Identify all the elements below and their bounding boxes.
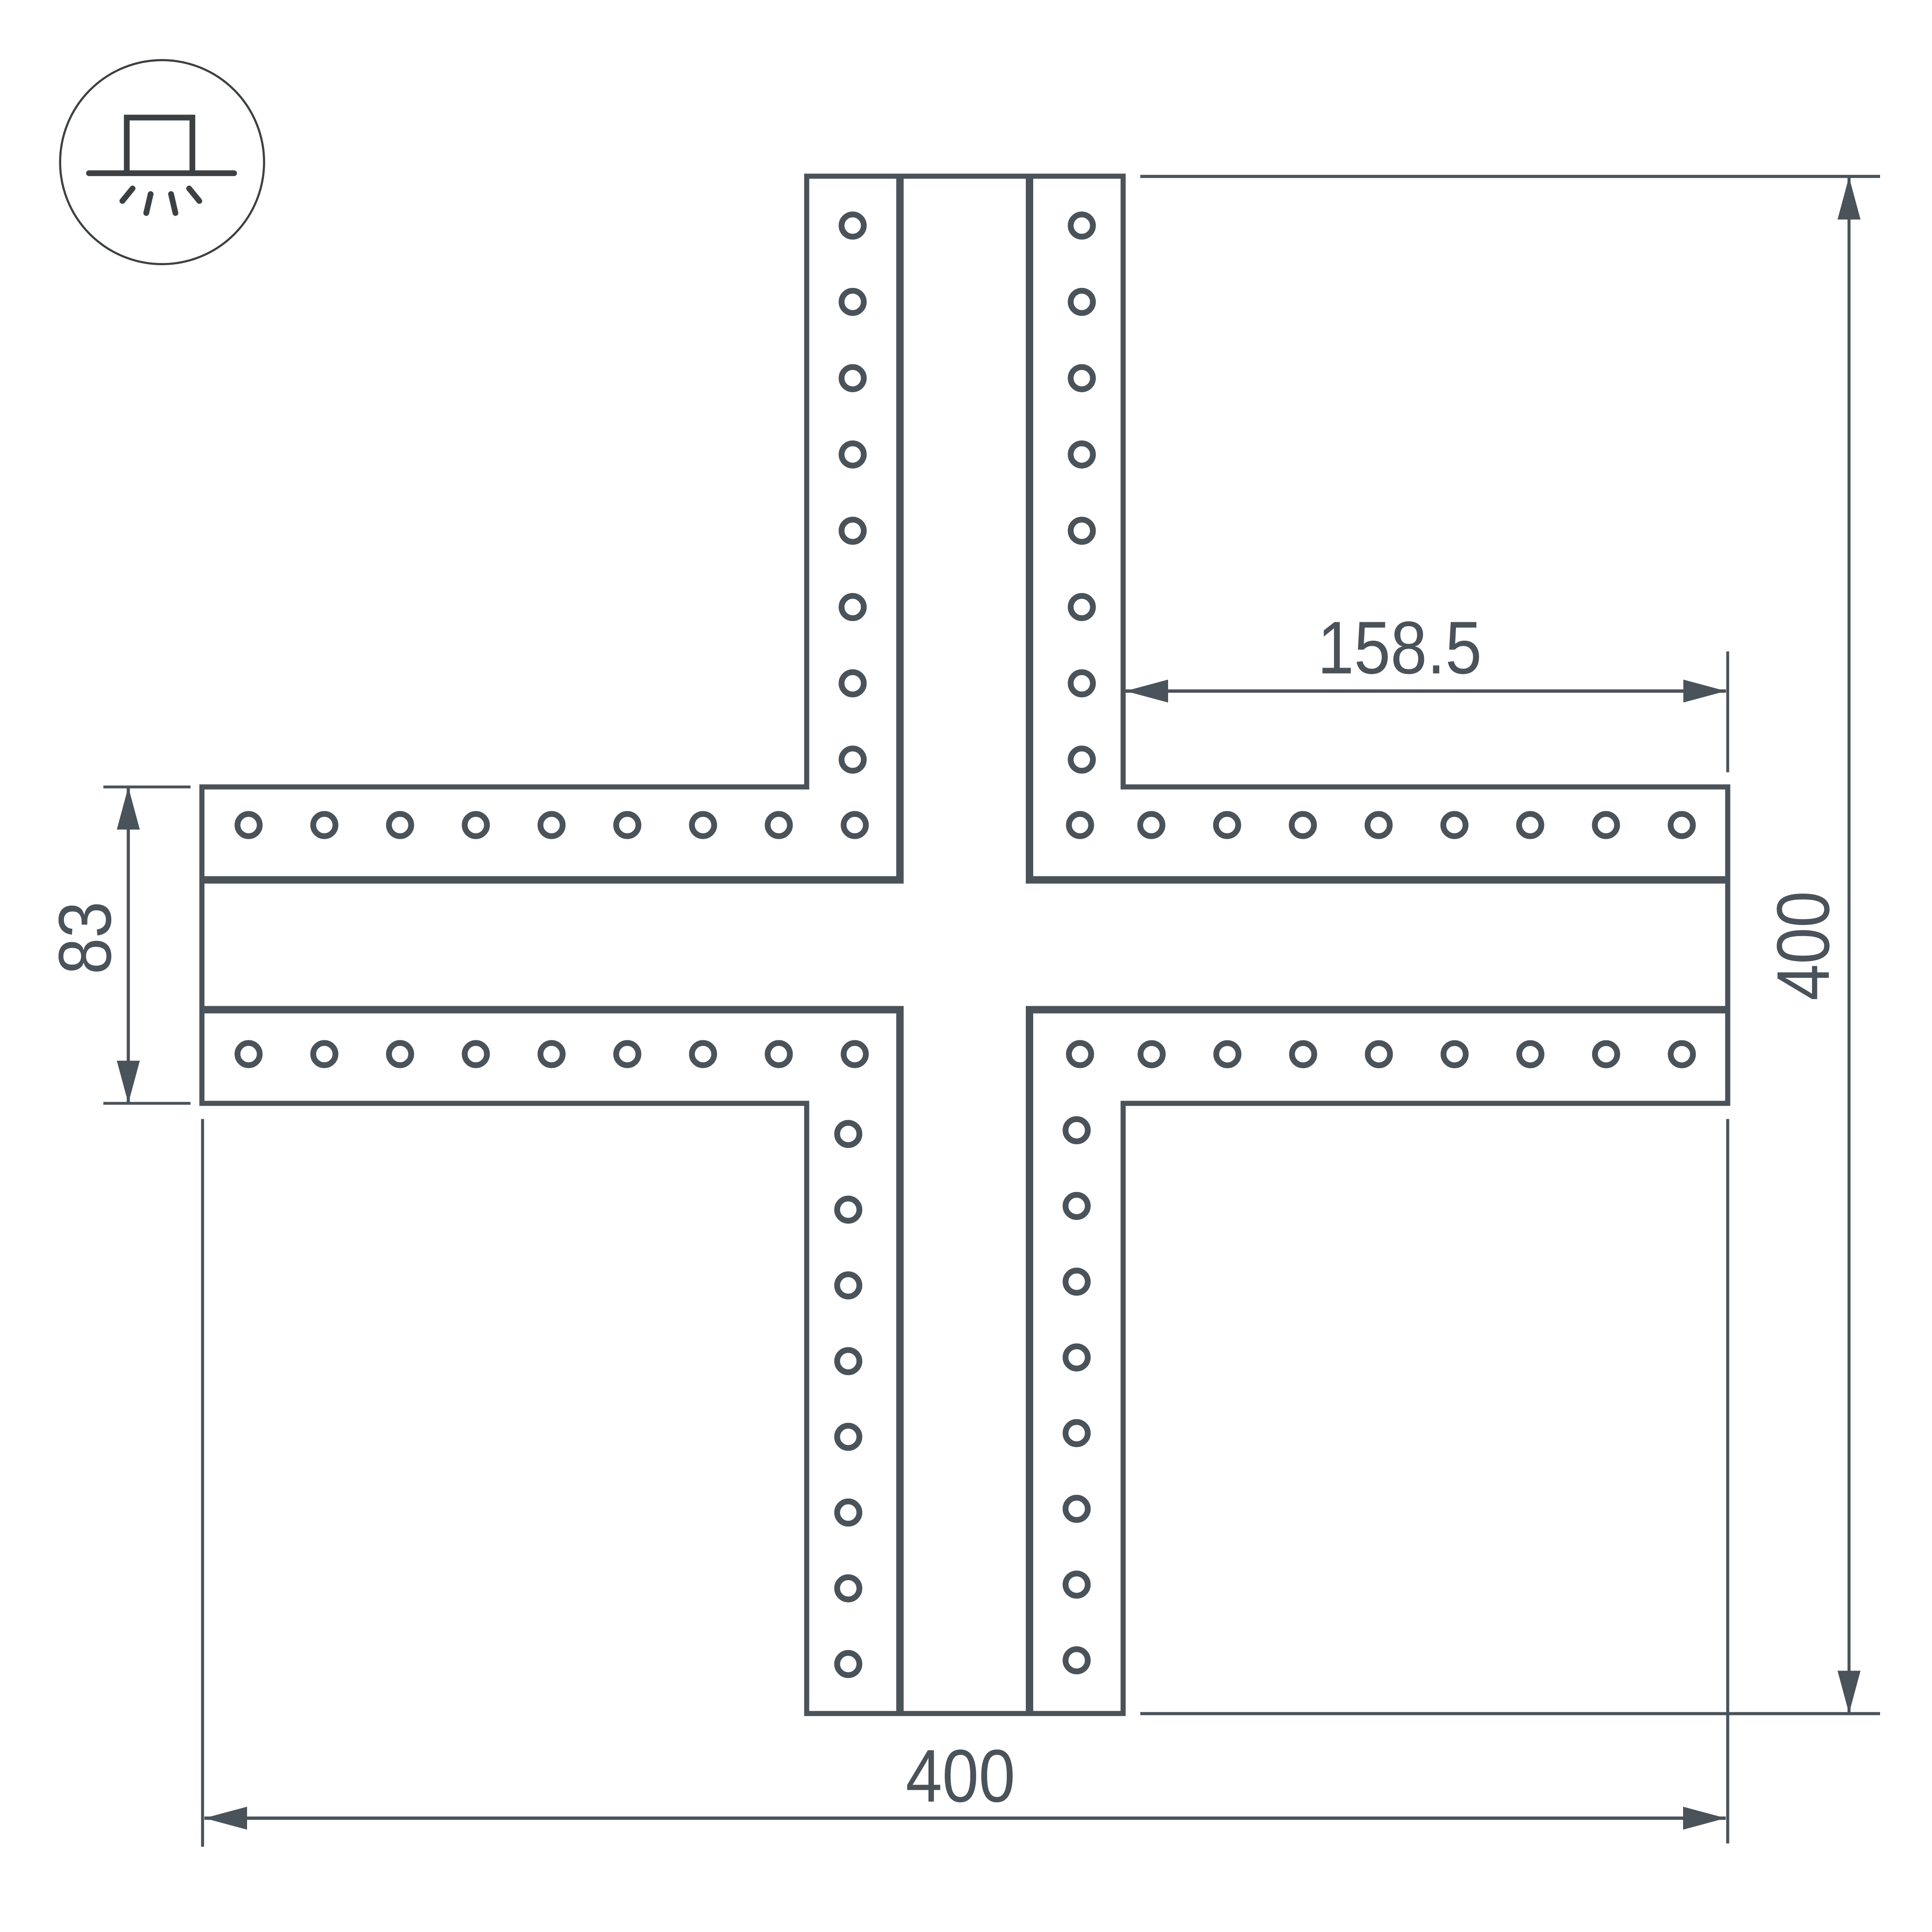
svg-text:158.5: 158.5 (1317, 606, 1481, 689)
svg-text:83: 83 (44, 901, 127, 975)
svg-text:400: 400 (1762, 891, 1845, 1001)
svg-text:400: 400 (906, 1734, 1015, 1817)
